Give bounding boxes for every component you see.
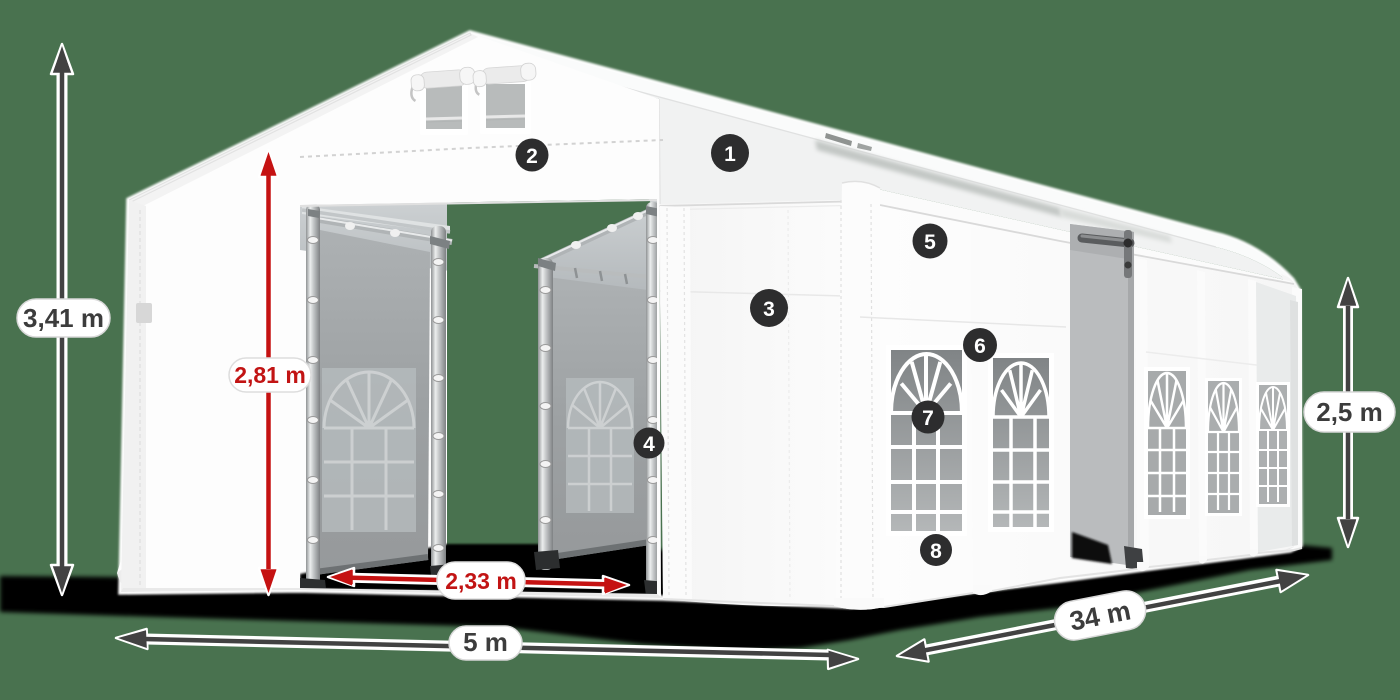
svg-text:7: 7 — [922, 407, 934, 430]
svg-text:2,5 m: 2,5 m — [1316, 397, 1383, 427]
svg-text:2,81 m: 2,81 m — [234, 362, 306, 388]
svg-text:3,41 m: 3,41 m — [23, 303, 104, 333]
svg-text:3: 3 — [763, 298, 775, 321]
svg-text:1: 1 — [724, 143, 736, 166]
svg-text:2,33 m: 2,33 m — [445, 568, 517, 594]
svg-text:8: 8 — [930, 540, 942, 563]
svg-text:5: 5 — [924, 231, 936, 254]
svg-text:2: 2 — [526, 145, 538, 168]
svg-text:5 m: 5 m — [463, 627, 508, 657]
svg-text:4: 4 — [643, 433, 655, 456]
svg-text:6: 6 — [974, 335, 986, 358]
